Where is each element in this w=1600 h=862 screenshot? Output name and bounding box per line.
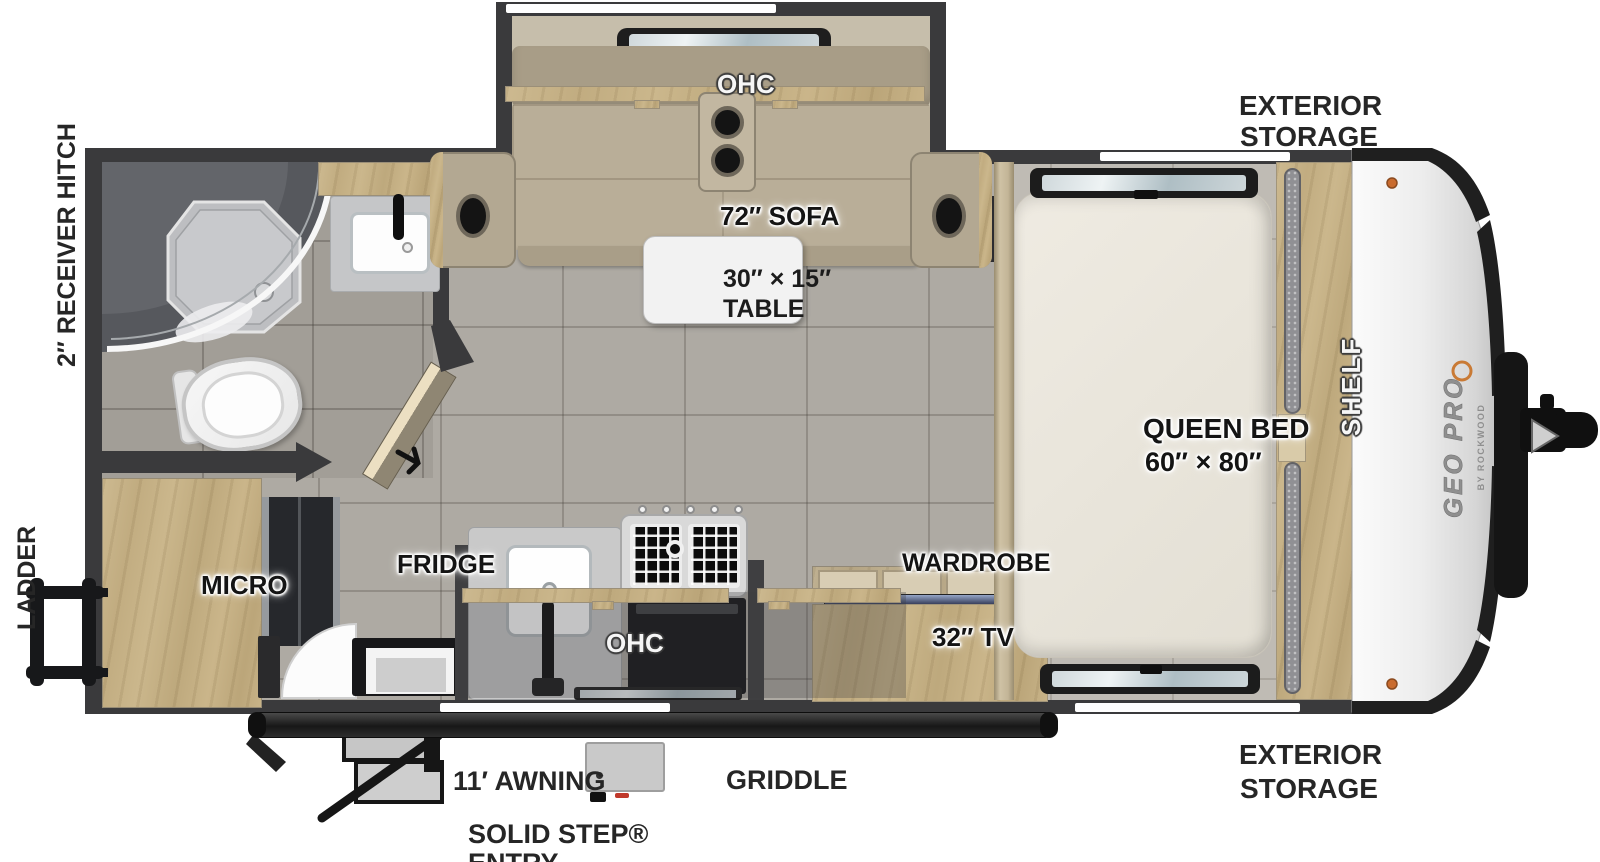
awning-roller: [248, 712, 1058, 738]
bathroom-arrow-wall: [100, 442, 332, 482]
awning-bracket: [246, 734, 286, 772]
marker-light-top: [1387, 178, 1397, 188]
floorplan-canvas: GEO PRO BY ROCKWOOD EXTERIOR STORAGE EXT…: [0, 0, 1600, 862]
griddle-handle: [615, 793, 629, 798]
brand-name: GEO PRO: [1438, 376, 1468, 518]
brand-sub: BY ROCKWOOD: [1476, 404, 1486, 491]
door-handle-icon: [398, 449, 418, 472]
marker-light-bottom: [1387, 679, 1397, 689]
hitch-icon: [1494, 352, 1598, 598]
awning-roller-cap-left: [248, 712, 266, 738]
bathroom-angled-wall: [431, 320, 474, 372]
awning-roller-cap-right: [1040, 712, 1058, 738]
